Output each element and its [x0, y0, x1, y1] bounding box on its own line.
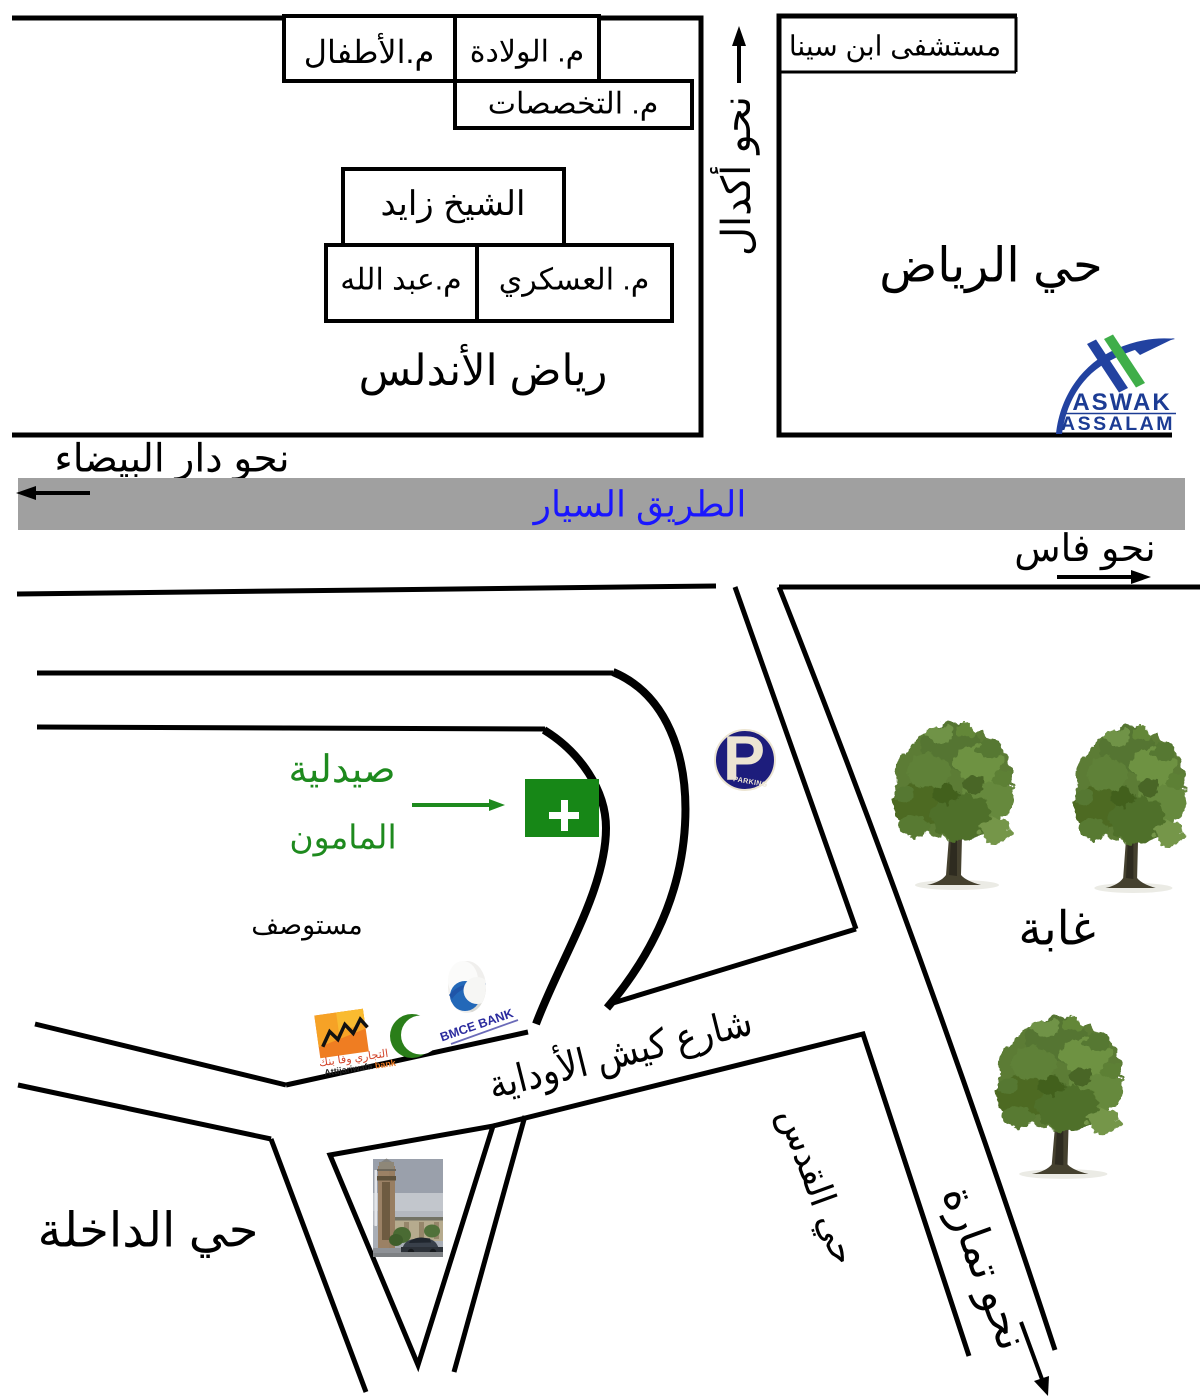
svg-text:حي الرياض: حي الرياض	[879, 240, 1102, 294]
svg-text:المامون: المامون	[289, 819, 396, 858]
svg-text:م. الولادة: م. الولادة	[470, 36, 584, 70]
svg-text:م. العسكري: م. العسكري	[499, 264, 650, 298]
svg-text:نحو دار البيضاء: نحو دار البيضاء	[54, 438, 289, 482]
svg-text:صيدلية: صيدلية	[288, 749, 395, 791]
svg-text:نحو فاس: نحو فاس	[1014, 528, 1155, 571]
svg-text:الشيخ زايد: الشيخ زايد	[381, 185, 526, 224]
svg-text:نحو أكدال: نحو أكدال	[709, 96, 760, 256]
svg-text:مستوصف: مستوصف	[251, 910, 363, 941]
svg-text:ASSALAM: ASSALAM	[1061, 413, 1175, 435]
svg-text:غابة: غابة	[1018, 902, 1095, 955]
svg-text:م. التخصصات: م. التخصصات	[488, 88, 659, 122]
svg-text:ASWAK: ASWAK	[1072, 389, 1171, 416]
svg-text:رياض الأندلس: رياض الأندلس	[359, 343, 608, 396]
svg-text:الطريق السيار: الطريق السيار	[532, 484, 747, 526]
svg-text:مستشفى ابن سينا: مستشفى ابن سينا	[789, 31, 1001, 63]
svg-text:م.عبد الله: م.عبد الله	[340, 264, 461, 298]
svg-text:حي الداخلة: حي الداخلة	[38, 1205, 259, 1259]
svg-text:م.الأطفال: م.الأطفال	[304, 32, 435, 71]
